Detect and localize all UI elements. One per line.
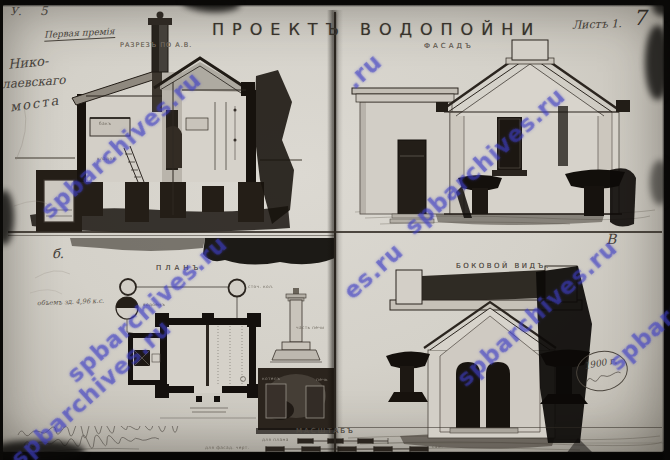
side-view-label: БОКОВОЙ ВИДЪ. xyxy=(456,262,551,270)
sheet-label: Листъ 1. xyxy=(572,17,622,32)
facade-label: ФАСАДЪ xyxy=(424,42,474,50)
frame-bottom xyxy=(0,451,670,460)
horizontal-fold-line-2 xyxy=(8,235,334,236)
plan-corner-mark: б. xyxy=(52,246,64,261)
year-stamp-squiggle xyxy=(584,370,623,386)
sheet-number-handwritten: 7 xyxy=(633,6,646,30)
side-view-baseline xyxy=(338,427,662,428)
scale-title: МАСШТАБЪ xyxy=(296,427,355,435)
scale-unit-label: саж. xyxy=(432,444,444,449)
section-label: РАЗРЕЗЪ ПО А.В. xyxy=(120,41,192,49)
furnace-label-right: печь xyxy=(316,377,328,382)
furnace-label-left: котелъ xyxy=(262,376,280,381)
archival-photo-of-architectural-sheet: ПРОЕКТЪ ВОДОПОЙНИ РАЗРЕЗЪ ПО А.В. ФАСАДЪ… xyxy=(0,0,670,460)
scale-plan-caption: для плана xyxy=(262,437,289,442)
plan-post-detail-label: часть печи xyxy=(296,325,324,330)
stain-right-edge xyxy=(645,25,670,100)
sheet-title: ПРОЕКТЪ ВОДОПОЙНИ xyxy=(212,20,541,39)
horizontal-fold-line xyxy=(8,231,662,233)
plan-drain-well-label: сточ. кол. xyxy=(248,284,274,289)
section-tank-label: бакъ xyxy=(99,121,111,126)
frame-top xyxy=(0,0,670,7)
stain-right-edge-2 xyxy=(650,160,670,205)
scale-facade-caption: для фасад. черт. xyxy=(205,445,249,450)
